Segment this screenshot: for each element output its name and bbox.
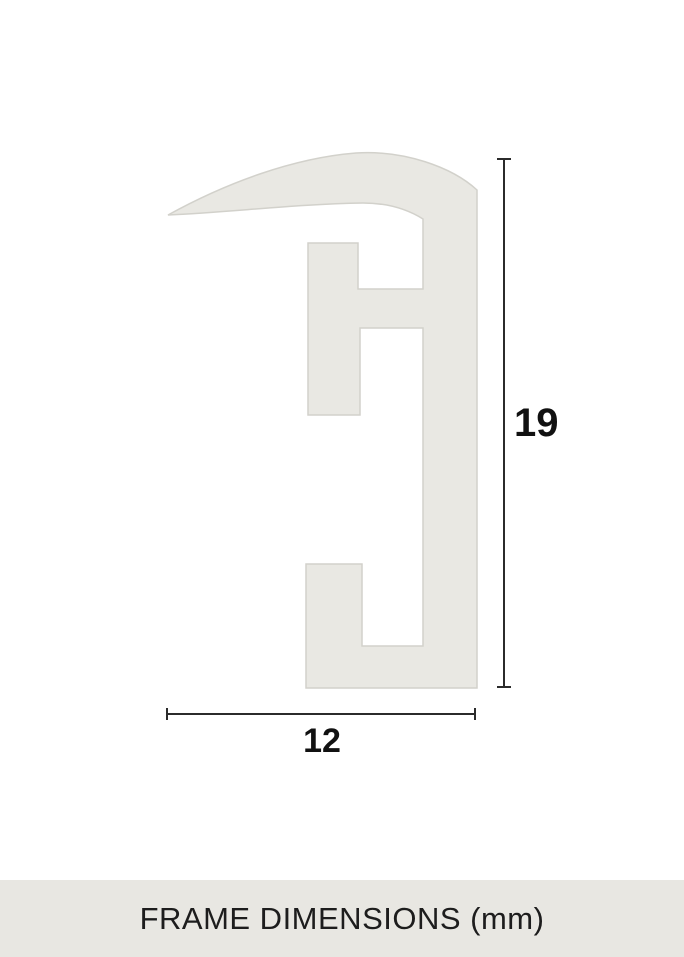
width-dimension-label: 12 [303,722,341,760]
frame-dimension-diagram: 19 12 FRAME DIMENSIONS (mm) [0,0,684,957]
frame-profile-shape [168,153,477,688]
width-dimension: 12 [167,708,475,760]
footer-bar: FRAME DIMENSIONS (mm) [0,880,684,957]
profile-diagram-svg: 19 12 [0,0,684,880]
height-dimension-label: 19 [514,401,559,445]
footer-caption: FRAME DIMENSIONS (mm) [140,901,545,937]
height-dimension: 19 [497,159,559,687]
